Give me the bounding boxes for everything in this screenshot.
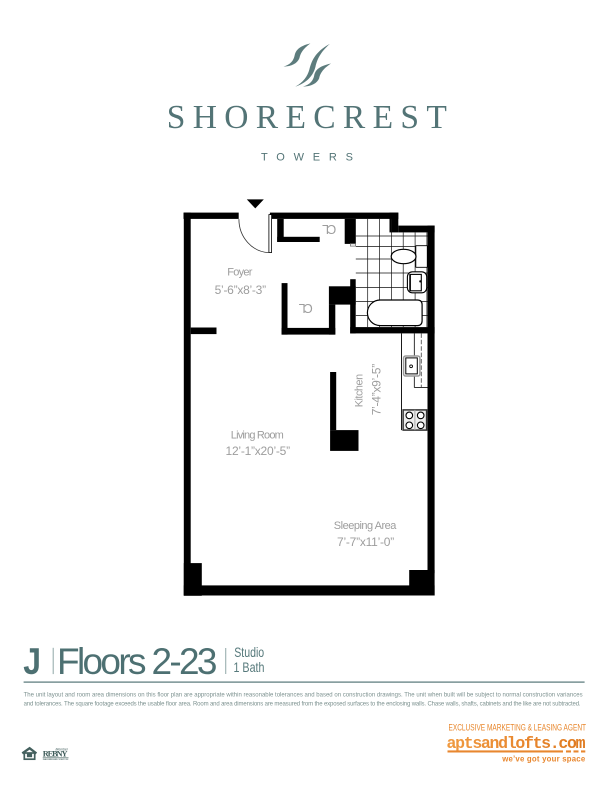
svg-text:REBNY: REBNY (43, 750, 68, 759)
svg-text:7’-4”x9’-5”: 7’-4”x9’-5” (370, 364, 384, 416)
svg-text:TOWERS: TOWERS (261, 151, 361, 163)
svg-text:Floors 2-23: Floors 2-23 (57, 641, 218, 682)
svg-text:J: J (23, 640, 41, 682)
svg-text:Studio: Studio (234, 645, 264, 661)
svg-text:we’ve got your space: we’ve got your space (501, 755, 586, 764)
svg-text:REAL ESTATE BOARD OF NEW YORK: REAL ESTATE BOARD OF NEW YORK (43, 758, 69, 761)
svg-text:and tolerances. The square foo: and tolerances. The square footage excee… (24, 701, 581, 707)
svg-text:Foyer: Foyer (227, 267, 253, 279)
svg-text:12’-1”x20’-5”: 12’-1”x20’-5” (226, 444, 291, 458)
svg-text:Sleeping Area: Sleeping Area (334, 520, 397, 532)
svg-text:CL: CL (299, 301, 313, 315)
svg-text:SHORECREST: SHORECREST (167, 99, 457, 136)
svg-text:CL: CL (322, 222, 336, 236)
svg-text:The unit layout and room area: The unit layout and room area dimensions… (24, 692, 583, 698)
svg-text:Living Room: Living Room (231, 429, 284, 441)
svg-text:1 Bath: 1 Bath (234, 660, 265, 675)
svg-text:5’-6”x8’-3”: 5’-6”x8’-3” (215, 283, 267, 297)
svg-text:Kitchen: Kitchen (354, 374, 366, 407)
svg-text:aptsandlofts.com: aptsandlofts.com (447, 734, 586, 753)
svg-text:7’-7”x11’-0”: 7’-7”x11’-0” (337, 535, 394, 549)
svg-text:EXCLUSIVE MARKETING & LEASING: EXCLUSIVE MARKETING & LEASING AGENT (449, 722, 587, 732)
